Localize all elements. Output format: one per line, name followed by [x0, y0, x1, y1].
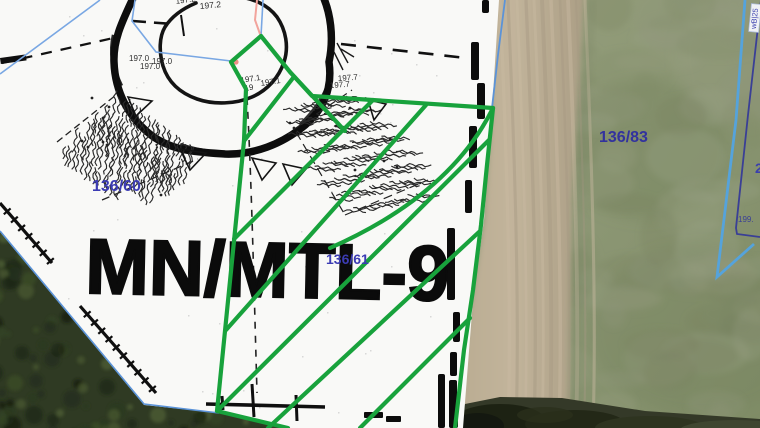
svg-text:197.7: 197.7 [330, 80, 351, 90]
svg-text:199.: 199. [738, 215, 754, 224]
svg-text:136/83: 136/83 [599, 129, 648, 146]
svg-text:136/61: 136/61 [326, 251, 369, 267]
svg-text:MN/MTL-9: MN/MTL-9 [85, 222, 451, 318]
svg-text:197.0: 197.0 [140, 62, 161, 71]
svg-text:2: 2 [755, 160, 760, 176]
svg-text:136/60: 136/60 [92, 178, 141, 195]
svg-text:197.2: 197.2 [199, 0, 221, 11]
